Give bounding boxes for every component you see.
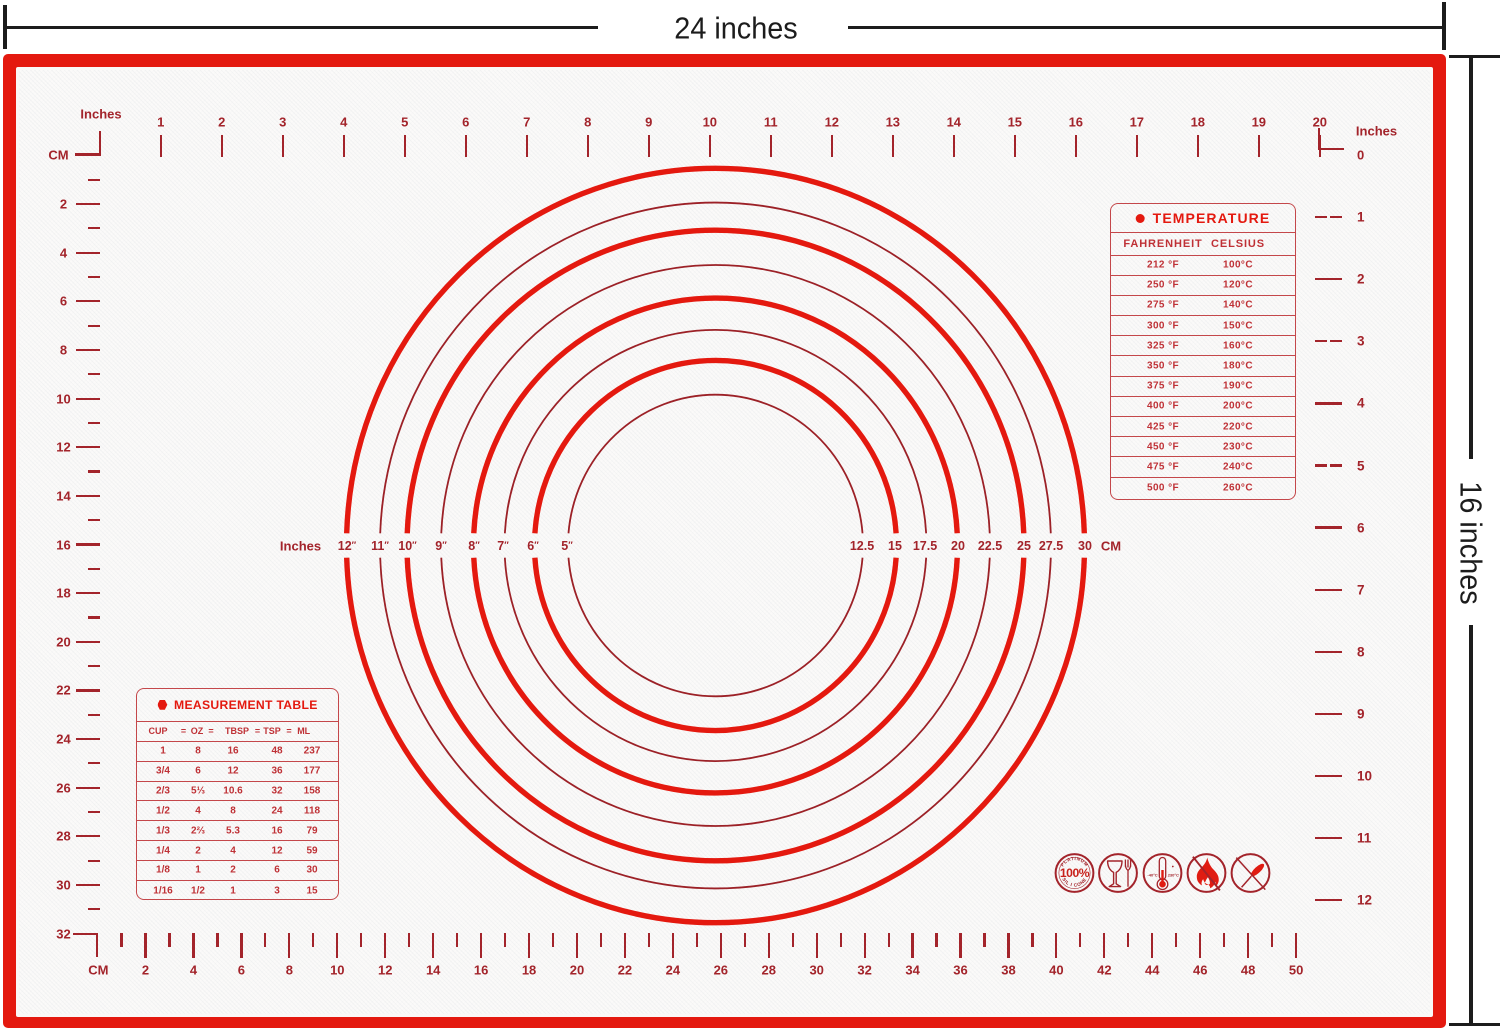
svg-text:230°C: 230°C (1168, 872, 1179, 877)
svg-text:-40°C: -40°C (1147, 872, 1157, 877)
